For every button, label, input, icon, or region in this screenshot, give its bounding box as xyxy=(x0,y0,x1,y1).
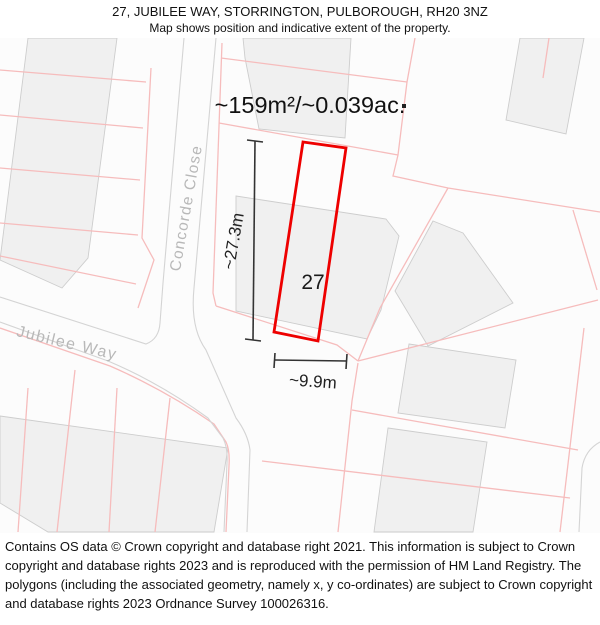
dimension-cap xyxy=(346,354,347,369)
parcel-line xyxy=(138,68,154,308)
road-line xyxy=(579,442,600,532)
parcel-line xyxy=(573,210,597,290)
parcel-line xyxy=(338,363,358,532)
page-title: 27, JUBILEE WAY, STORRINGTON, PULBOROUGH… xyxy=(0,4,600,19)
building xyxy=(0,38,117,288)
building xyxy=(398,344,516,428)
os-attribution: Contains OS data © Crown copyright and d… xyxy=(5,538,595,613)
building xyxy=(506,38,584,134)
building xyxy=(236,196,399,339)
building xyxy=(243,38,351,138)
width-dimension-label: ~9.9m xyxy=(288,370,337,392)
building xyxy=(395,221,513,346)
street-label-jubilee-way: Jubilee Way xyxy=(15,323,119,364)
dimension-cap xyxy=(247,140,263,142)
dimension-width xyxy=(274,353,347,369)
dimension-line xyxy=(275,360,347,361)
area-label: ~159m²/~0.039ac. xyxy=(215,92,406,118)
dimension-cap xyxy=(245,339,261,341)
plot-number-label: 27 xyxy=(301,271,324,294)
footer: Contains OS data © Crown copyright and d… xyxy=(0,533,600,625)
building xyxy=(374,428,487,532)
map-svg: Concorde Close Jubilee Way 27 ~159m²/~0.… xyxy=(0,38,600,533)
property-map-page: 27, JUBILEE WAY, STORRINGTON, PULBOROUGH… xyxy=(0,0,600,625)
page-subtitle: Map shows position and indicative extent… xyxy=(0,21,600,35)
header: 27, JUBILEE WAY, STORRINGTON, PULBOROUGH… xyxy=(0,0,600,38)
map-container: Concorde Close Jubilee Way 27 ~159m²/~0.… xyxy=(0,38,600,533)
dimension-cap xyxy=(274,353,275,368)
